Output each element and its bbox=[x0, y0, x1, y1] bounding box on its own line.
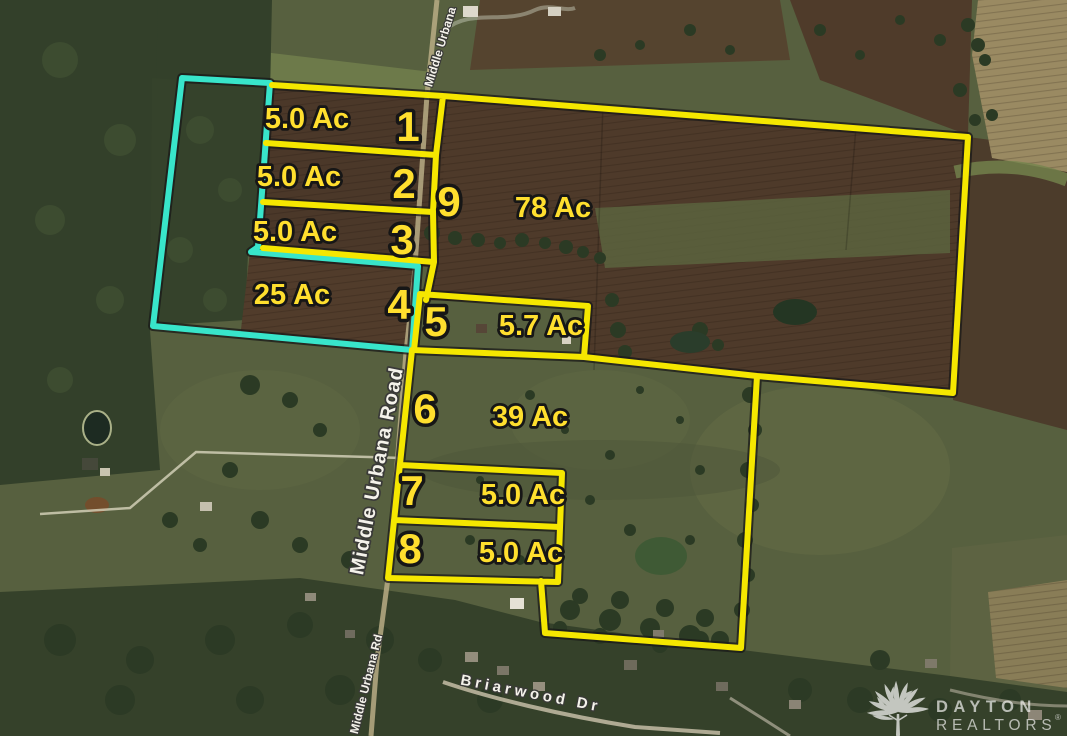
parcel-7-acreage: 5.0 Ac bbox=[481, 479, 565, 511]
watermark-suffix: REALTORS bbox=[936, 717, 1057, 734]
parcel-1-number: 1 bbox=[396, 103, 419, 150]
parcel-9-number: 9 bbox=[437, 178, 460, 225]
parcel-9-acreage: 78 Ac bbox=[515, 192, 591, 224]
map-canvas: Middle Urbana Middle Urbana Road Middle … bbox=[0, 0, 1067, 736]
parcel-3-acreage: 5.0 Ac bbox=[253, 216, 337, 248]
parcel-1-acreage: 5.0 Ac bbox=[265, 103, 349, 135]
parcel-6-acreage: 39 Ac bbox=[492, 401, 568, 433]
parcel-5-acreage: 5.7 Ac bbox=[499, 310, 583, 342]
parcel-2-number: 2 bbox=[392, 160, 415, 207]
parcel-8-acreage: 5.0 Ac bbox=[479, 537, 563, 569]
watermark-brand: DAYTON bbox=[936, 698, 1037, 716]
parcel-7-number: 7 bbox=[400, 467, 423, 514]
pond-mid bbox=[670, 331, 710, 353]
pond-north bbox=[773, 299, 817, 325]
parcel-6-number: 6 bbox=[413, 385, 436, 432]
parcel-4-acreage: 25 Ac bbox=[254, 279, 330, 311]
watermark-registered-mark: ® bbox=[1055, 713, 1061, 722]
parcel-5-number: 5 bbox=[424, 298, 447, 345]
parcel-8-number: 8 bbox=[398, 525, 421, 572]
parcel-4-number: 4 bbox=[387, 281, 411, 328]
parcel-2-acreage: 5.0 Ac bbox=[257, 161, 341, 193]
parcel-3-number: 3 bbox=[390, 216, 413, 263]
pond-west bbox=[83, 411, 111, 445]
aerial-parcel-map: Middle Urbana Middle Urbana Road Middle … bbox=[0, 0, 1067, 736]
satellite-imagery bbox=[0, 0, 1067, 736]
pond-south bbox=[635, 537, 687, 575]
